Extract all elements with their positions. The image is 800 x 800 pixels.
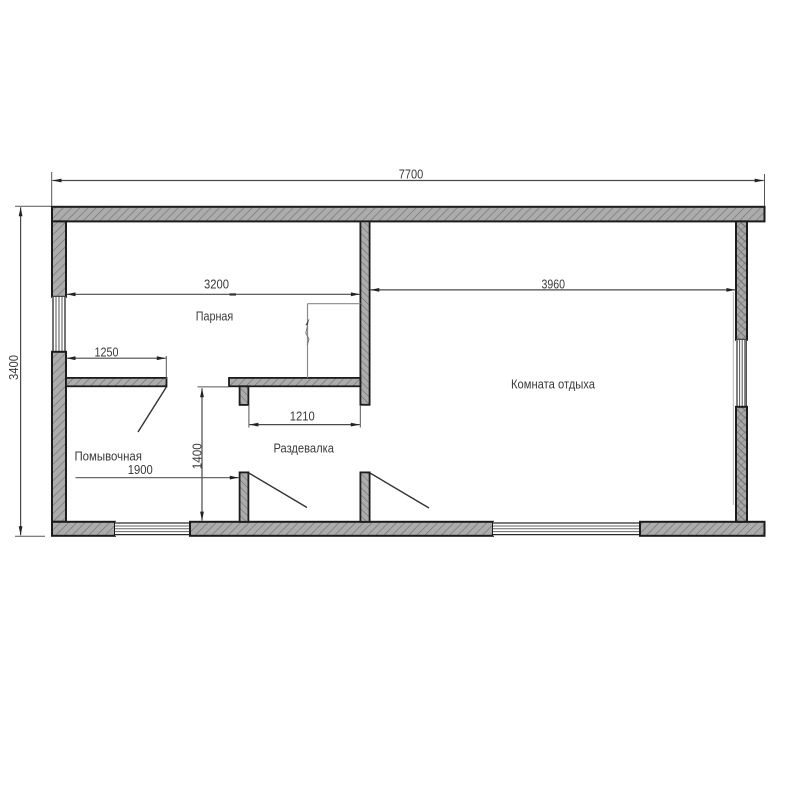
- svg-text:3400: 3400: [6, 355, 21, 380]
- svg-text:1900: 1900: [128, 462, 153, 477]
- svg-text:Помывочная: Помывочная: [74, 448, 142, 463]
- svg-text:3200: 3200: [204, 276, 229, 291]
- svg-text:1210: 1210: [290, 409, 315, 424]
- svg-text:3960: 3960: [541, 276, 565, 291]
- svg-text:1250: 1250: [95, 345, 119, 360]
- svg-text:Раздевалка: Раздевалка: [273, 441, 334, 456]
- svg-text:Парная: Парная: [196, 308, 234, 323]
- svg-text:7700: 7700: [399, 167, 424, 182]
- svg-text:1400: 1400: [189, 443, 204, 469]
- svg-text:Комната отдыха: Комната отдыха: [511, 376, 596, 391]
